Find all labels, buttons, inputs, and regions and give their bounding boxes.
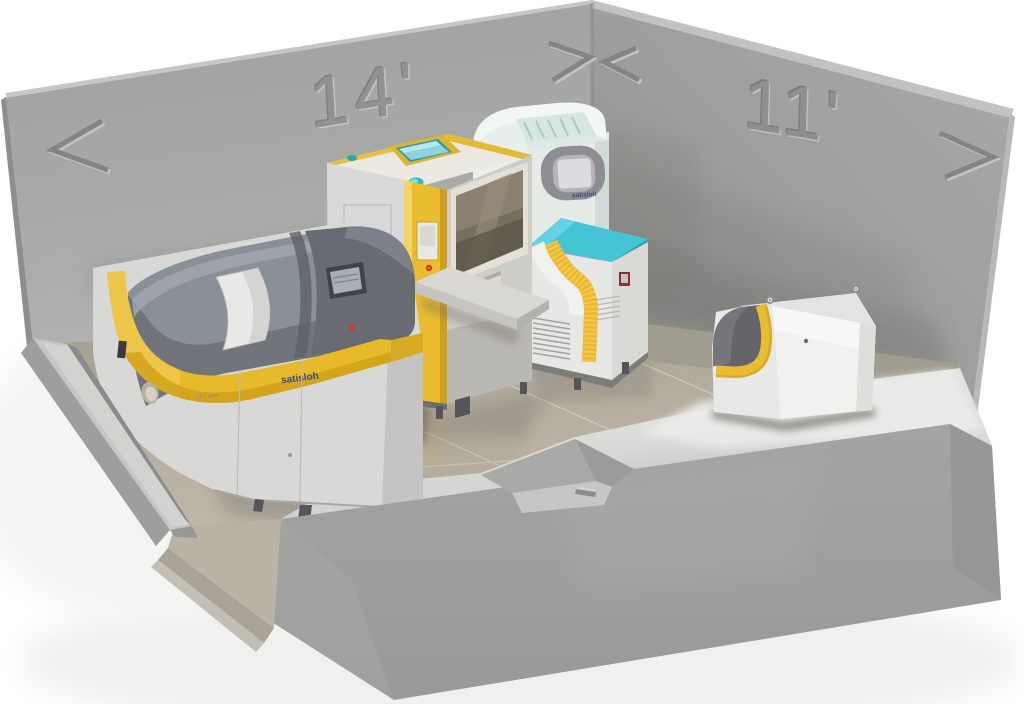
svg-text:11': 11' bbox=[743, 63, 844, 160]
